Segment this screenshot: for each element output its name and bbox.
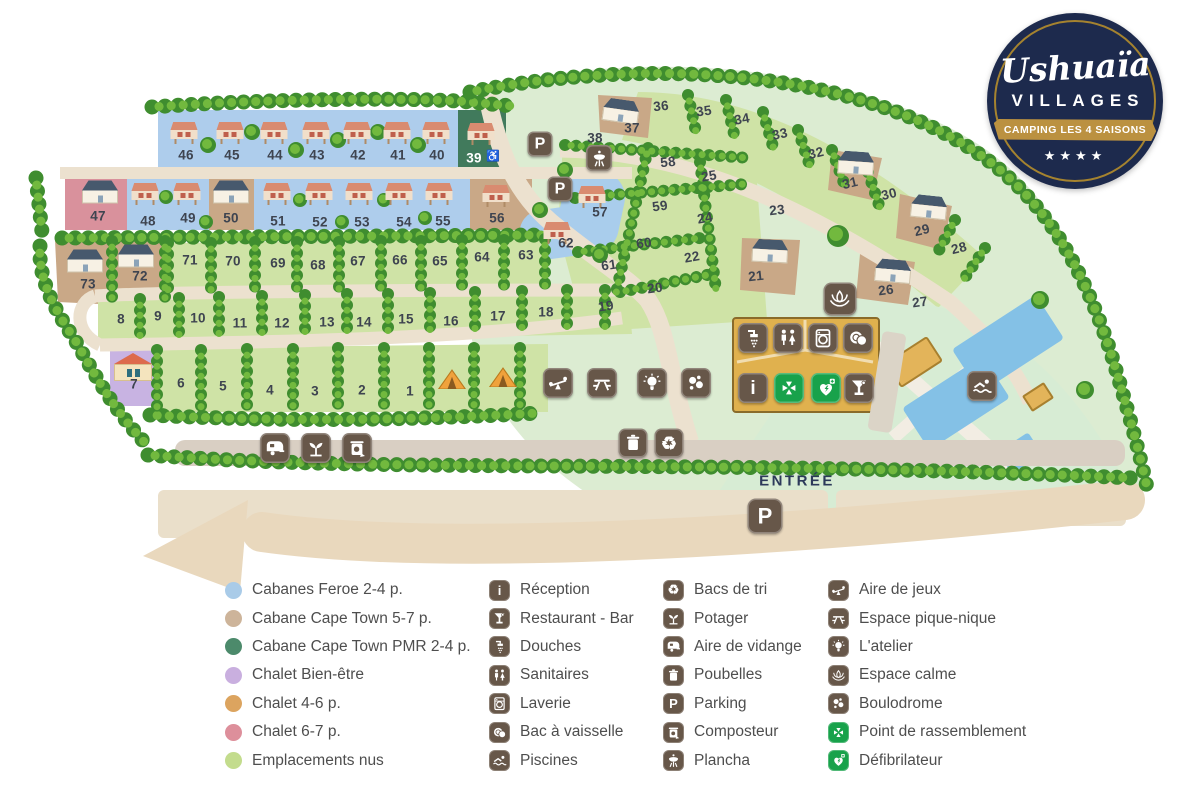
color-dot bbox=[225, 724, 242, 741]
color-dot bbox=[225, 752, 242, 769]
legend-item: Douches bbox=[489, 633, 634, 661]
legend-item: Cabane Cape Town PMR 2-4 p. bbox=[225, 633, 471, 661]
legend-label: Bac à vaisselle bbox=[520, 723, 623, 741]
color-dot bbox=[225, 582, 242, 599]
legend-label: Boulodrome bbox=[859, 695, 943, 713]
legend-label: Aire de vidange bbox=[694, 638, 802, 656]
letter-icon: P bbox=[663, 693, 684, 714]
legend-item: Emplacements nus bbox=[225, 746, 471, 774]
legend: Cabanes Feroe 2-4 p.Cabane Cape Town 5-7… bbox=[0, 576, 1200, 791]
legend-item: iRéception bbox=[489, 576, 634, 604]
lotus-icon bbox=[828, 665, 849, 686]
legend-label: Bacs de tri bbox=[694, 581, 767, 599]
entrance-label: ENTRÉE bbox=[759, 473, 835, 490]
legend-item: Plancha bbox=[663, 746, 802, 774]
caravan-icon bbox=[663, 636, 684, 657]
legend-item: Cabanes Feroe 2-4 p. bbox=[225, 576, 471, 604]
legend-col-activities: Aire de jeuxEspace pique-niqueL'atelierE… bbox=[828, 576, 1026, 775]
legend-item: Aire de vidange bbox=[663, 633, 802, 661]
color-dot bbox=[225, 638, 242, 655]
legend-item: Espace pique-nique bbox=[828, 604, 1026, 632]
legend-item: Laverie bbox=[489, 690, 634, 718]
legend-item: Chalet Bien-être bbox=[225, 661, 471, 689]
legend-label: Chalet 4-6 p. bbox=[252, 695, 341, 713]
color-dot bbox=[225, 610, 242, 627]
sprout-icon bbox=[663, 608, 684, 629]
shower-icon bbox=[489, 636, 510, 657]
legend-item: Sanitaires bbox=[489, 661, 634, 689]
legend-label: Composteur bbox=[694, 723, 778, 741]
legend-item: Restaurant - Bar bbox=[489, 604, 634, 632]
legend-item: PParking bbox=[663, 690, 802, 718]
legend-label: Sanitaires bbox=[520, 666, 589, 684]
bar-icon bbox=[489, 608, 510, 629]
legend-label: Cabanes Feroe 2-4 p. bbox=[252, 581, 403, 599]
trash-icon bbox=[663, 665, 684, 686]
legend-item: Bac à vaisselle bbox=[489, 718, 634, 746]
legend-item: Boulodrome bbox=[828, 690, 1026, 718]
legend-label: L'atelier bbox=[859, 638, 913, 656]
legend-item: Chalet 4-6 p. bbox=[225, 690, 471, 718]
compost-icon bbox=[663, 722, 684, 743]
legend-col-facilities: iRéceptionRestaurant - BarDouchesSanitai… bbox=[489, 576, 634, 775]
legend-item: Piscines bbox=[489, 746, 634, 774]
legend-item: Point de rassemblement bbox=[828, 718, 1026, 746]
legend-item: Poubelles bbox=[663, 661, 802, 689]
legend-label: Emplacements nus bbox=[252, 752, 384, 770]
wc-icon bbox=[489, 665, 510, 686]
grill-icon bbox=[663, 750, 684, 771]
letter-icon: i bbox=[489, 580, 510, 601]
legend-col-accommodations: Cabanes Feroe 2-4 p.Cabane Cape Town 5-7… bbox=[225, 576, 471, 775]
campsite-map: 4645444342414039383747484950515253545556… bbox=[0, 0, 1200, 800]
legend-item: Espace calme bbox=[828, 661, 1026, 689]
assembly-icon bbox=[828, 722, 849, 743]
legend-col-services: ♻Bacs de triPotagerAire de vidangePoubel… bbox=[663, 576, 802, 775]
legend-item: Composteur bbox=[663, 718, 802, 746]
legend-item: Cabane Cape Town 5-7 p. bbox=[225, 604, 471, 632]
legend-item: Potager bbox=[663, 604, 802, 632]
legend-label: Défibrilateur bbox=[859, 752, 943, 770]
legend-label: Piscines bbox=[520, 752, 578, 770]
legend-label: Cabane Cape Town PMR 2-4 p. bbox=[252, 638, 471, 656]
legend-label: Aire de jeux bbox=[859, 581, 941, 599]
logo-brand-text: Ushuaïa bbox=[999, 44, 1151, 91]
legend-item: Chalet 6-7 p. bbox=[225, 718, 471, 746]
legend-label: Réception bbox=[520, 581, 590, 599]
picnic-icon bbox=[828, 608, 849, 629]
legend-label: Poubelles bbox=[694, 666, 762, 684]
legend-label: Chalet Bien-être bbox=[252, 666, 364, 684]
bulb-icon bbox=[828, 636, 849, 657]
legend-label: Point de rassemblement bbox=[859, 723, 1026, 741]
seesaw-icon bbox=[828, 580, 849, 601]
legend-label: Restaurant - Bar bbox=[520, 610, 634, 628]
legend-item: Défibrilateur bbox=[828, 746, 1026, 774]
color-dot bbox=[225, 695, 242, 712]
dishes-icon bbox=[489, 722, 510, 743]
defib-icon bbox=[828, 750, 849, 771]
legend-label: Potager bbox=[694, 610, 748, 628]
legend-item: ♻Bacs de tri bbox=[663, 576, 802, 604]
legend-label: Douches bbox=[520, 638, 581, 656]
legend-label: Chalet 6-7 p. bbox=[252, 723, 341, 741]
washer-icon bbox=[489, 693, 510, 714]
legend-label: Cabane Cape Town 5-7 p. bbox=[252, 610, 432, 628]
legend-item: Aire de jeux bbox=[828, 576, 1026, 604]
color-dot bbox=[225, 667, 242, 684]
letter-icon: ♻ bbox=[663, 580, 684, 601]
legend-label: Parking bbox=[694, 695, 747, 713]
legend-label: Plancha bbox=[694, 752, 750, 770]
boules-icon bbox=[828, 693, 849, 714]
legend-label: Espace pique-nique bbox=[859, 610, 996, 628]
legend-item: L'atelier bbox=[828, 633, 1026, 661]
swim-icon bbox=[489, 750, 510, 771]
legend-label: Espace calme bbox=[859, 666, 956, 684]
logo-ribbon: CAMPING LES 4 SAISONS bbox=[994, 119, 1156, 141]
legend-label: Laverie bbox=[520, 695, 571, 713]
brand-logo: Ushuaïa VILLAGES CAMPING LES 4 SAISONS ★… bbox=[987, 13, 1163, 189]
